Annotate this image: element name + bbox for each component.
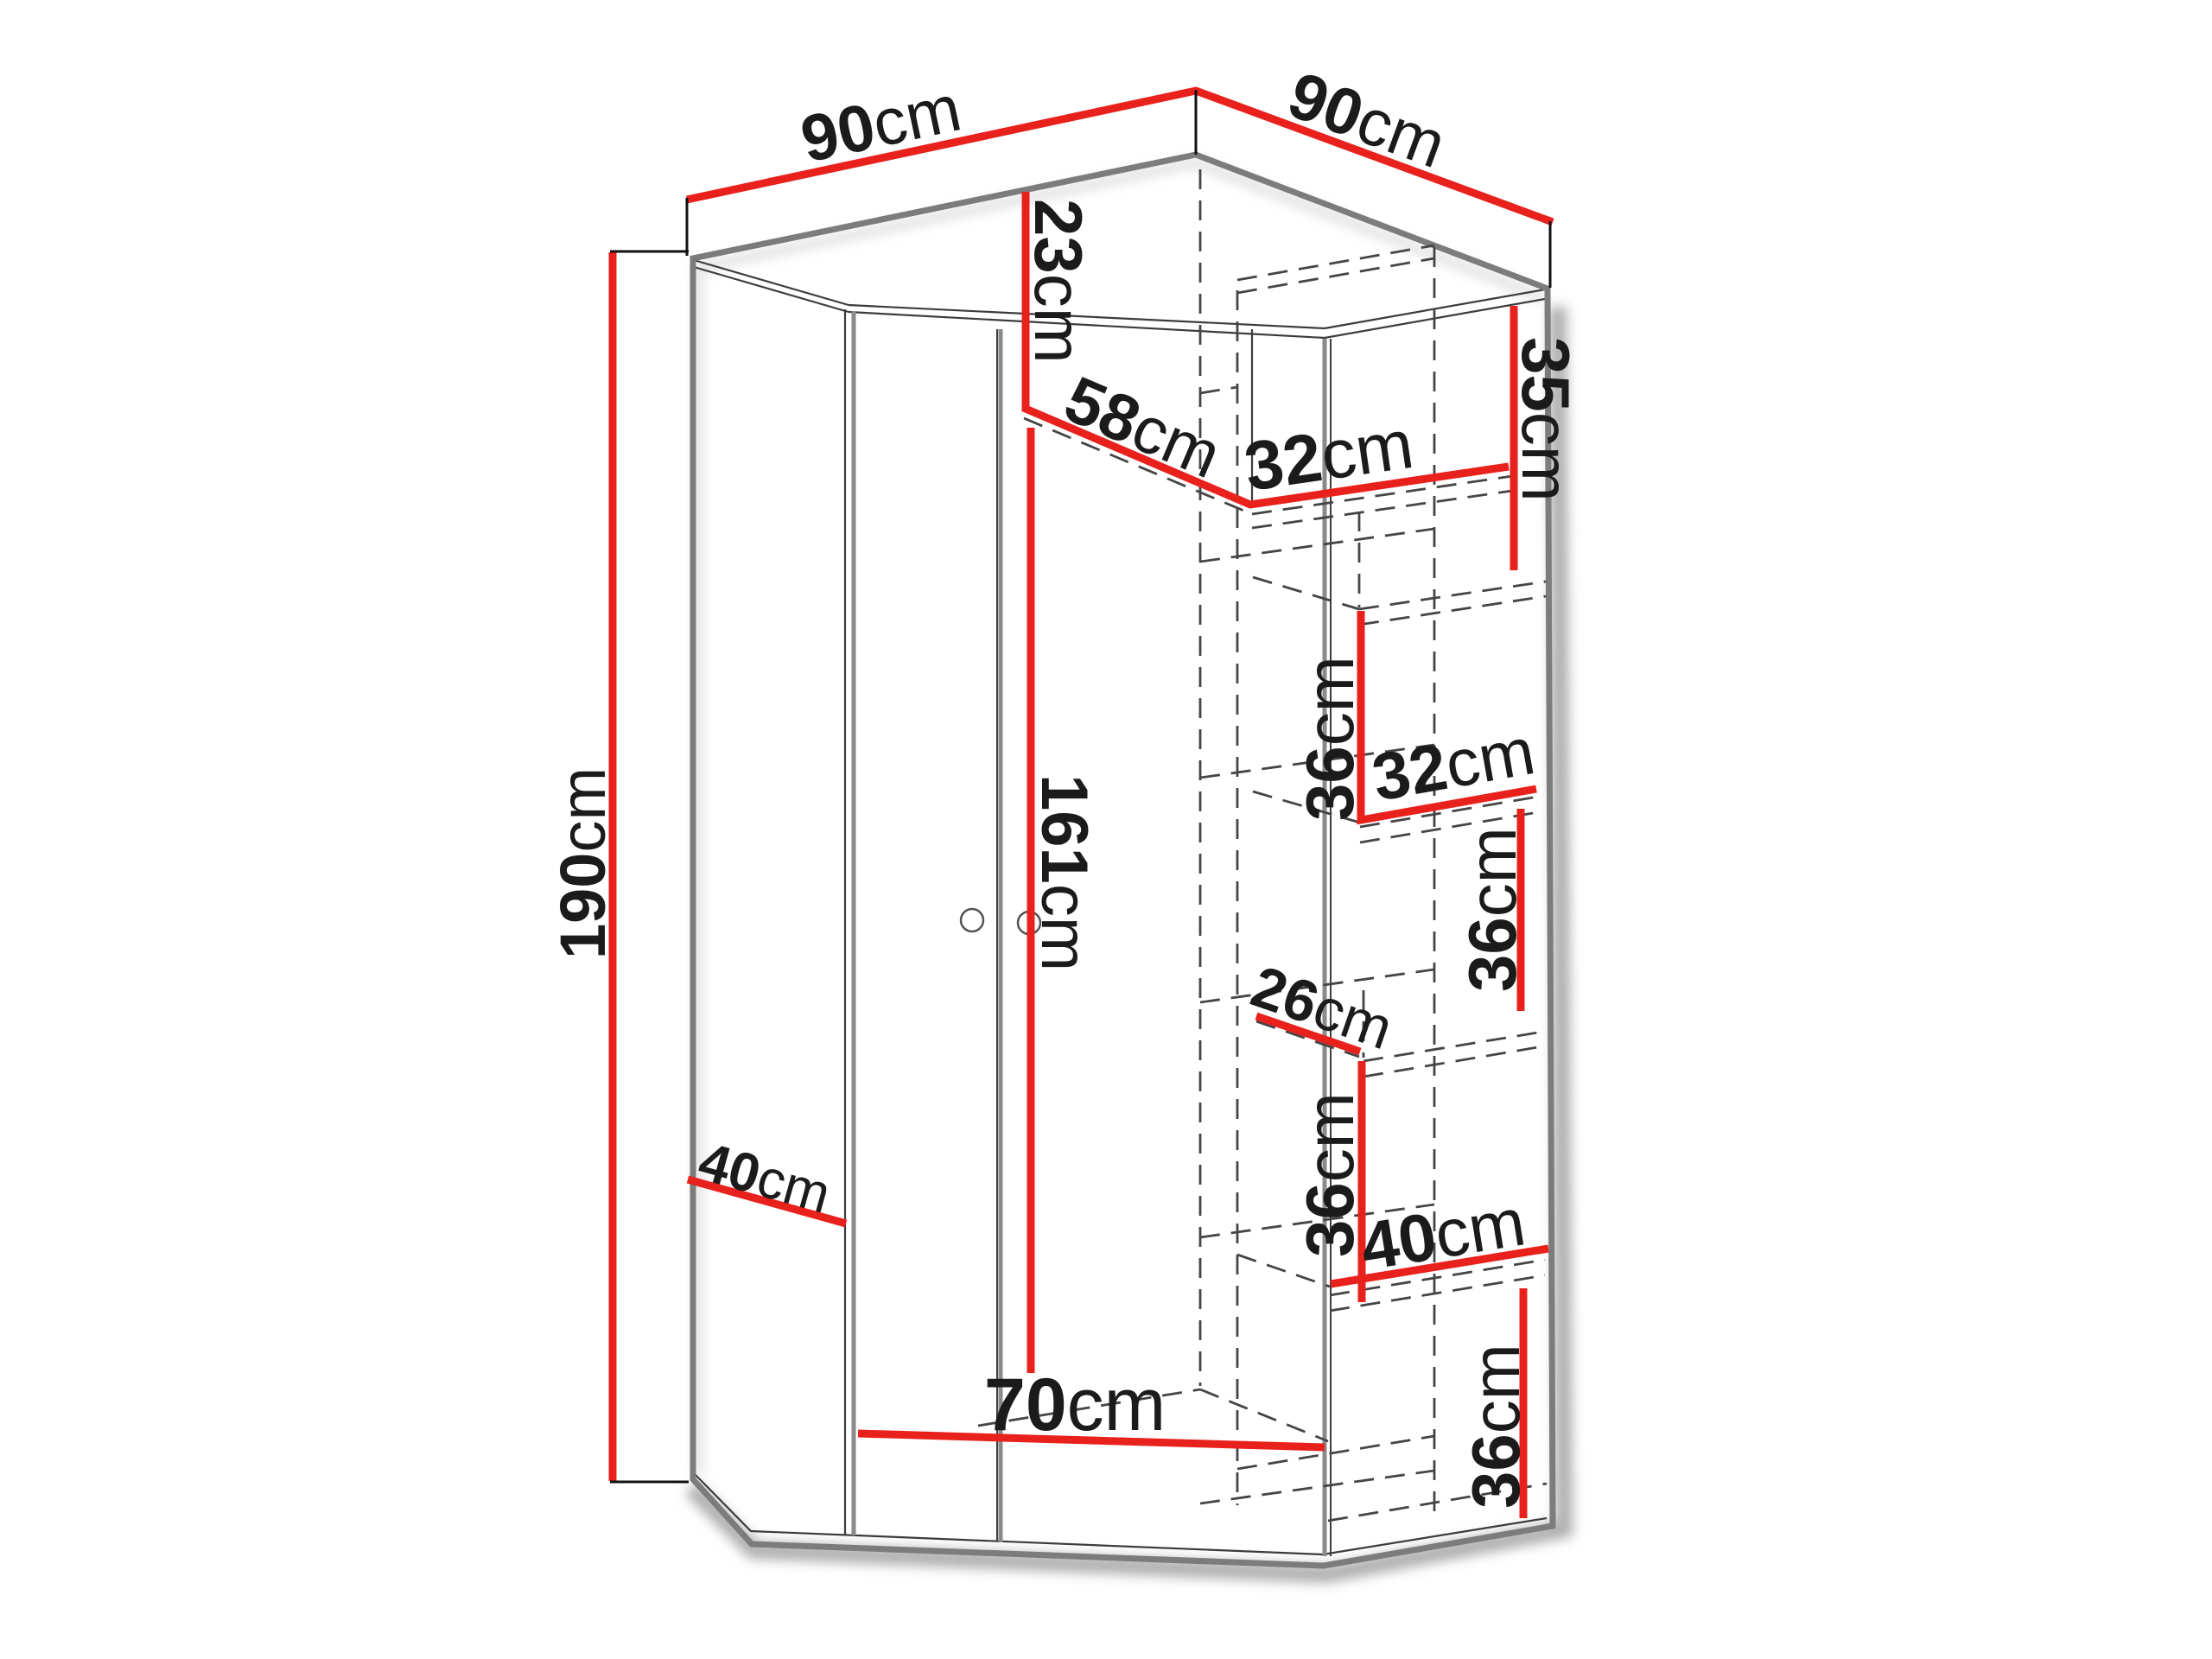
svg-text:190cm: 190cm <box>547 767 619 959</box>
svg-text:36cm: 36cm <box>1292 1092 1368 1257</box>
svg-text:161cm: 161cm <box>1027 774 1101 971</box>
svg-text:36cm: 36cm <box>1292 656 1368 821</box>
svg-text:23cm: 23cm <box>1020 199 1096 364</box>
svg-text:35cm: 35cm <box>1508 337 1584 502</box>
svg-text:36cm: 36cm <box>1458 1344 1534 1509</box>
svg-text:70cm: 70cm <box>984 1363 1166 1446</box>
svg-text:36cm: 36cm <box>1454 827 1530 992</box>
